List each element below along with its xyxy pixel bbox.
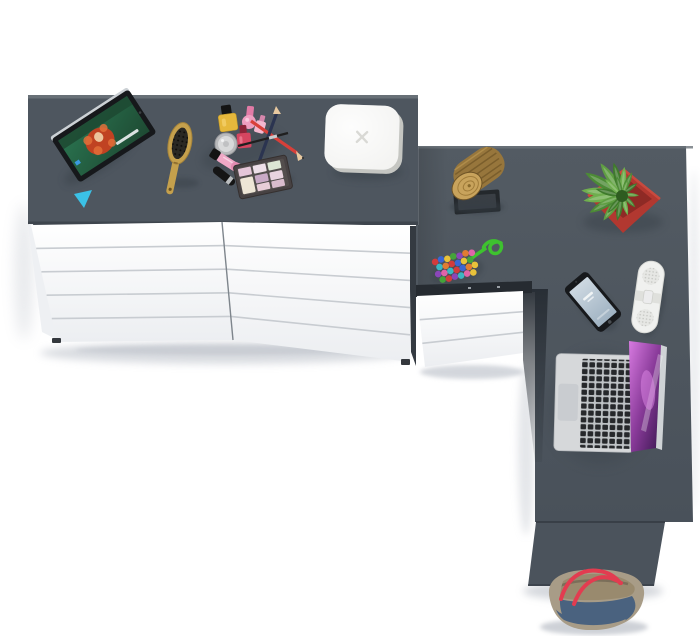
desk-top-bevel: [416, 146, 693, 149]
laptop-trackpad: [558, 384, 579, 422]
drawer-handle-glint: [497, 286, 500, 288]
dresser-top-bevel: [28, 95, 418, 99]
dresser-drawers-right: [222, 222, 410, 362]
dresser-drawers-left: [31, 222, 233, 342]
tote-bag: [549, 569, 644, 630]
scene-svg: [0, 0, 700, 636]
stump-shadow: [450, 200, 504, 214]
furniture-product-render: [0, 0, 700, 636]
desk-drawer-front: [417, 291, 523, 367]
white-box-speaker: [324, 104, 404, 175]
desk-panel-seam: [536, 521, 665, 523]
speaker-buckle: [643, 290, 654, 304]
liner-ferrule: [269, 136, 277, 138]
laptop-body: [554, 353, 637, 452]
dresser-foot-left: [52, 338, 61, 343]
pencil-red-lead: [302, 157, 304, 159]
dresser-desk-sliver: [409, 226, 416, 366]
drawer-handle-glint: [468, 287, 471, 289]
laptop: [554, 341, 667, 453]
dresser-foot-right: [401, 359, 410, 365]
brush-collar: [174, 162, 178, 163]
laptop-keys: [580, 359, 633, 449]
